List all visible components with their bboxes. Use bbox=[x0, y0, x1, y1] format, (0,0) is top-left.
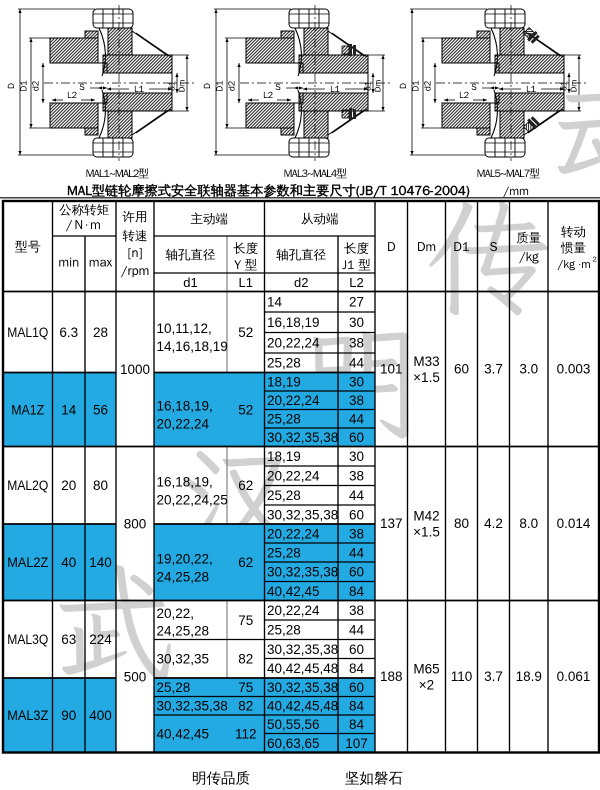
svg-text:0.003: 0.003 bbox=[557, 362, 591, 377]
svg-text:20,22,: 20,22, bbox=[157, 606, 195, 621]
svg-text:38: 38 bbox=[349, 526, 364, 541]
svg-text:18.9: 18.9 bbox=[516, 669, 542, 684]
svg-text:20,22,24: 20,22,24 bbox=[157, 417, 210, 432]
svg-text:90: 90 bbox=[61, 708, 76, 723]
svg-text:52: 52 bbox=[238, 325, 253, 340]
svg-text:16,18,19,: 16,18,19, bbox=[157, 399, 213, 414]
svg-text:×1.5: ×1.5 bbox=[413, 370, 440, 385]
svg-text:60: 60 bbox=[349, 680, 364, 695]
svg-text:MA1Z: MA1Z bbox=[11, 402, 44, 417]
svg-text:30,32,35,38: 30,32,35,38 bbox=[157, 699, 228, 714]
svg-text:30,32,35,38: 30,32,35,38 bbox=[267, 642, 338, 657]
svg-text:14: 14 bbox=[267, 295, 283, 310]
svg-text:52: 52 bbox=[238, 402, 253, 417]
svg-text:40,42,45: 40,42,45 bbox=[267, 584, 320, 599]
svg-text:M42: M42 bbox=[413, 509, 439, 524]
svg-text:L1: L1 bbox=[239, 275, 253, 290]
svg-text:0.061: 0.061 bbox=[557, 669, 591, 684]
svg-text:20: 20 bbox=[61, 478, 76, 493]
svg-text:60: 60 bbox=[349, 507, 364, 522]
svg-text:6.3: 6.3 bbox=[59, 325, 78, 340]
svg-text:400: 400 bbox=[89, 708, 112, 723]
svg-text:500: 500 bbox=[124, 669, 147, 684]
svg-text:28: 28 bbox=[93, 325, 108, 340]
svg-text:40: 40 bbox=[61, 555, 76, 570]
svg-text:107: 107 bbox=[345, 736, 368, 751]
svg-text:MAL3Q: MAL3Q bbox=[7, 632, 48, 647]
svg-text:20,22,24: 20,22,24 bbox=[267, 469, 320, 484]
svg-text:75: 75 bbox=[238, 680, 253, 695]
svg-text:40,42,45: 40,42,45 bbox=[157, 727, 210, 742]
svg-text:110: 110 bbox=[451, 669, 473, 684]
svg-text:30: 30 bbox=[349, 375, 364, 390]
svg-text:38: 38 bbox=[349, 336, 364, 351]
svg-text:3.7: 3.7 bbox=[484, 669, 503, 684]
svg-text:30,32,35,38: 30,32,35,38 bbox=[267, 507, 338, 522]
svg-text:27: 27 bbox=[349, 295, 364, 310]
svg-text:19,20,22,: 19,20,22, bbox=[157, 551, 213, 566]
svg-text:18,19: 18,19 bbox=[267, 449, 301, 464]
svg-text:20,22,24: 20,22,24 bbox=[267, 336, 320, 351]
svg-text:1000: 1000 bbox=[120, 362, 150, 377]
svg-text:24,25,28: 24,25,28 bbox=[157, 569, 210, 584]
svg-text:80: 80 bbox=[93, 478, 108, 493]
svg-text:60: 60 bbox=[349, 430, 364, 445]
svg-text:25,28: 25,28 bbox=[267, 623, 301, 638]
svg-text:14: 14 bbox=[61, 402, 77, 417]
svg-text:56: 56 bbox=[93, 402, 108, 417]
svg-text:44: 44 bbox=[349, 623, 365, 638]
svg-text:10,11,12,: 10,11,12, bbox=[157, 321, 212, 336]
svg-text:62: 62 bbox=[238, 478, 253, 493]
svg-text:84: 84 bbox=[349, 661, 365, 676]
svg-text:101: 101 bbox=[380, 362, 403, 377]
svg-text:3.7: 3.7 bbox=[484, 362, 503, 377]
svg-text:188: 188 bbox=[380, 669, 403, 684]
svg-text:38: 38 bbox=[349, 393, 364, 408]
svg-text:20,22,24,25: 20,22,24,25 bbox=[157, 492, 228, 507]
svg-text:8.0: 8.0 bbox=[519, 516, 538, 531]
svg-text:112: 112 bbox=[235, 727, 257, 742]
svg-text:MAL2Q: MAL2Q bbox=[7, 478, 48, 493]
svg-text:224: 224 bbox=[89, 632, 112, 647]
svg-text:30,32,35: 30,32,35 bbox=[157, 652, 210, 667]
svg-text:M65: M65 bbox=[413, 662, 439, 677]
svg-text:25,28: 25,28 bbox=[157, 680, 191, 695]
svg-text:MAL3Z: MAL3Z bbox=[7, 708, 48, 723]
svg-text:40,42,45,48: 40,42,45,48 bbox=[267, 699, 338, 714]
svg-text:84: 84 bbox=[349, 584, 365, 599]
svg-text:44: 44 bbox=[349, 356, 365, 371]
svg-text:25,28: 25,28 bbox=[267, 356, 301, 371]
svg-text:44: 44 bbox=[349, 412, 365, 427]
svg-text:44: 44 bbox=[349, 488, 365, 503]
svg-text:82: 82 bbox=[238, 699, 253, 714]
svg-text:60: 60 bbox=[349, 565, 364, 580]
svg-text:82: 82 bbox=[238, 652, 253, 667]
svg-text:24,25,28: 24,25,28 bbox=[157, 624, 210, 639]
svg-text:30: 30 bbox=[349, 315, 364, 330]
svg-text:18,19: 18,19 bbox=[267, 375, 301, 390]
svg-text:40,42,45,48: 40,42,45,48 bbox=[267, 661, 338, 676]
svg-text:16,18,19,: 16,18,19, bbox=[157, 474, 213, 489]
svg-text:38: 38 bbox=[349, 469, 364, 484]
svg-text:84: 84 bbox=[349, 717, 365, 732]
svg-text:d1: d1 bbox=[183, 275, 197, 290]
svg-text:L2: L2 bbox=[349, 275, 363, 290]
svg-text:MAL1Q: MAL1Q bbox=[7, 325, 48, 340]
svg-text:d2: d2 bbox=[294, 275, 308, 290]
svg-text:16,18,19: 16,18,19 bbox=[267, 315, 320, 330]
svg-text:30: 30 bbox=[349, 449, 364, 464]
svg-text:60: 60 bbox=[349, 642, 364, 657]
svg-text:×1.5: ×1.5 bbox=[413, 525, 440, 540]
svg-text:0.014: 0.014 bbox=[557, 516, 591, 531]
svg-text:×2: ×2 bbox=[419, 678, 434, 693]
svg-text:75: 75 bbox=[238, 613, 253, 628]
svg-text:M33: M33 bbox=[413, 354, 439, 369]
svg-text:25,28: 25,28 bbox=[267, 545, 301, 560]
svg-text:20,22,24: 20,22,24 bbox=[267, 393, 320, 408]
svg-text:80: 80 bbox=[454, 516, 469, 531]
svg-text:30,32,35,38: 30,32,35,38 bbox=[267, 565, 338, 580]
svg-text:4.2: 4.2 bbox=[484, 516, 503, 531]
svg-text:30,32,35,38: 30,32,35,38 bbox=[267, 680, 338, 695]
svg-text:60: 60 bbox=[454, 362, 469, 377]
svg-text:44: 44 bbox=[349, 545, 365, 560]
svg-text:20,22,24: 20,22,24 bbox=[267, 603, 320, 618]
svg-text:137: 137 bbox=[380, 516, 403, 531]
svg-text:25,28: 25,28 bbox=[267, 488, 301, 503]
svg-text:63: 63 bbox=[61, 632, 76, 647]
svg-text:800: 800 bbox=[124, 516, 147, 531]
svg-text:30,32,35,38: 30,32,35,38 bbox=[267, 430, 338, 445]
svg-text:38: 38 bbox=[349, 603, 364, 618]
svg-text:14,16,18,19: 14,16,18,19 bbox=[157, 339, 228, 354]
svg-text:20,22,24: 20,22,24 bbox=[267, 526, 320, 541]
svg-text:MAL2Z: MAL2Z bbox=[7, 555, 48, 570]
svg-text:3.0: 3.0 bbox=[519, 362, 538, 377]
svg-text:60,63,65: 60,63,65 bbox=[267, 736, 320, 751]
svg-text:140: 140 bbox=[89, 555, 112, 570]
svg-text:62: 62 bbox=[238, 555, 253, 570]
svg-text:25,28: 25,28 bbox=[267, 412, 301, 427]
svg-text:84: 84 bbox=[349, 699, 365, 714]
svg-text:50,55,56: 50,55,56 bbox=[267, 717, 320, 732]
